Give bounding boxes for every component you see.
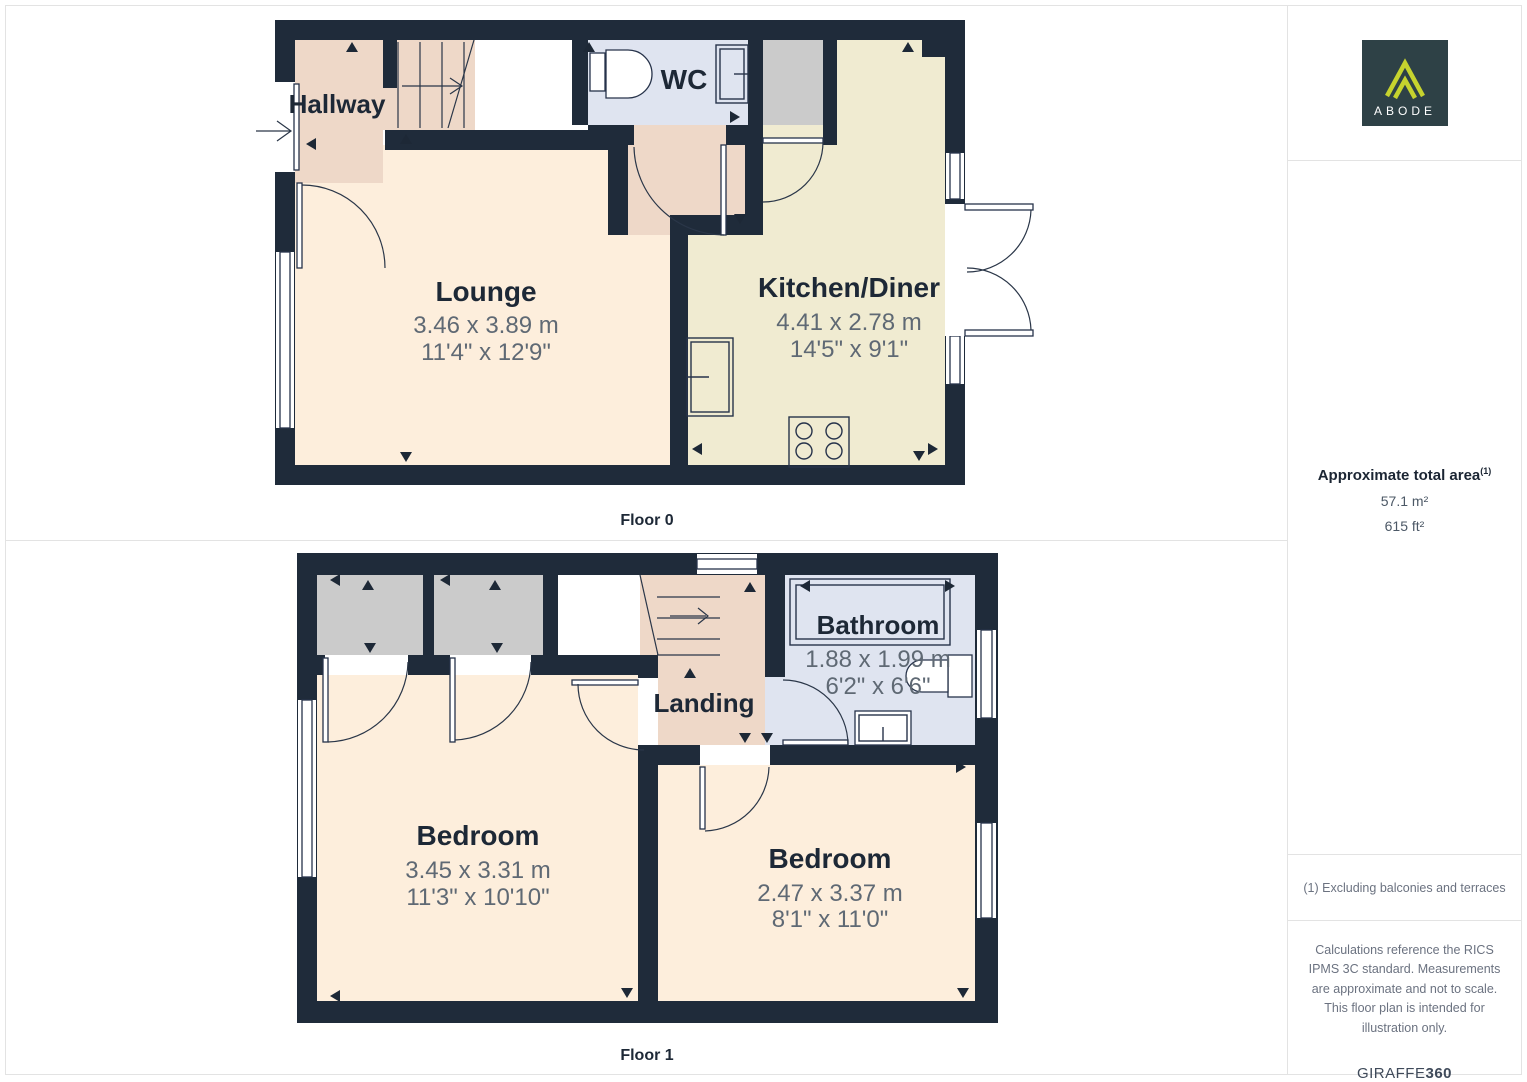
room-dims-bathroom-m: 1.88 x 1.99 m [805,646,950,673]
room-name-landing: Landing [653,688,754,718]
room-dims-bedroom-left-m: 3.45 x 3.31 m [405,857,550,884]
info-sidebar: ABODE Approximate total area(1) 57.1 m² … [1287,5,1522,1075]
area-ft2: 615 ft² [1288,518,1521,534]
room-name-bathroom: Bathroom [817,610,940,640]
window-kitchen-right-top [946,153,964,199]
stairwell-void-f0 [475,40,572,130]
disclaimer-section: Calculations reference the RICS IPMS 3C … [1288,921,1521,1082]
abode-logo-text: ABODE [1373,104,1435,118]
window-kitchen-right-bottom [946,336,964,384]
disclaimer-text: Calculations reference the RICS IPMS 3C … [1301,941,1508,1038]
toilet-fixture-wc [590,50,652,98]
floor0-label: Floor 0 [620,512,673,529]
window-bathroom-right [977,630,996,718]
stairwell-void-f1 [558,575,640,655]
room-name-bedroom-left: Bedroom [417,820,540,851]
sink-fixture-bathroom [855,711,911,745]
window-lounge-left [276,252,294,428]
storage-area-f0 [763,40,823,125]
area-section: Approximate total area(1) 57.1 m² 615 ft… [1288,161,1521,855]
room-name-hallway: Hallway [289,89,386,119]
logo-section: ABODE [1288,6,1521,161]
room-dims-bathroom-ft: 6'2" x 6'6" [826,673,931,700]
room-dims-kitchen-m: 4.41 x 2.78 m [776,309,921,336]
room-dims-kitchen-ft: 14'5" x 9'1" [790,336,908,363]
giraffe360-brand: GIRAFFE360 [1301,1065,1508,1082]
footnote-text: (1) Excluding balconies and terraces [1295,881,1513,895]
floor0-plan: Hallway WC Lounge 3.46 x 3.89 m 11'4" x … [256,20,1033,529]
area-m2: 57.1 m² [1288,493,1521,509]
room-name-wc: WC [661,64,708,95]
window-bedroom-right [977,823,996,918]
room-dims-bedroom-right-ft: 8'1" x 11'0" [772,906,889,933]
abode-logo: ABODE [1362,40,1448,126]
stairs-area-f0 [397,40,475,130]
room-dims-bedroom-right-m: 2.47 x 3.37 m [757,880,902,907]
room-name-lounge: Lounge [435,276,536,307]
room-dims-lounge-m: 3.46 x 3.89 m [413,312,558,339]
window-top-f1 [697,554,757,574]
room-name-kitchen: Kitchen/Diner [758,272,940,303]
room-dims-lounge-ft: 11'4" x 12'9" [421,339,551,366]
window-bedroom-left [298,700,316,877]
floor1-label: Floor 1 [620,1047,673,1064]
footnote-section: (1) Excluding balconies and terraces [1288,855,1521,921]
closet2-area [434,575,543,655]
french-doors [945,204,1033,336]
room-dims-bedroom-left-ft: 11'3" x 10'10" [406,884,549,911]
floor1-plan: Landing Bathroom 1.88 x 1.99 m 6'2" x 6'… [297,553,998,1064]
room-name-bedroom-right: Bedroom [769,843,892,874]
area-title: Approximate total area(1) [1288,466,1521,484]
footnote-marker: (1) [1480,466,1491,476]
